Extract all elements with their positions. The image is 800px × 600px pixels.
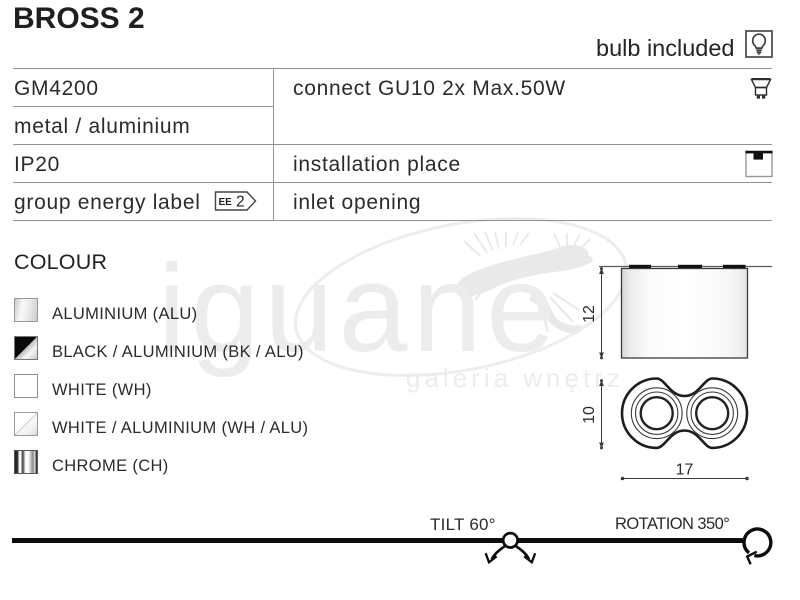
- svg-text:2: 2: [236, 194, 245, 211]
- svg-text:12: 12: [581, 305, 598, 323]
- svg-text:17: 17: [676, 462, 694, 479]
- svg-text:10: 10: [581, 406, 598, 424]
- svg-text:EE: EE: [219, 197, 233, 208]
